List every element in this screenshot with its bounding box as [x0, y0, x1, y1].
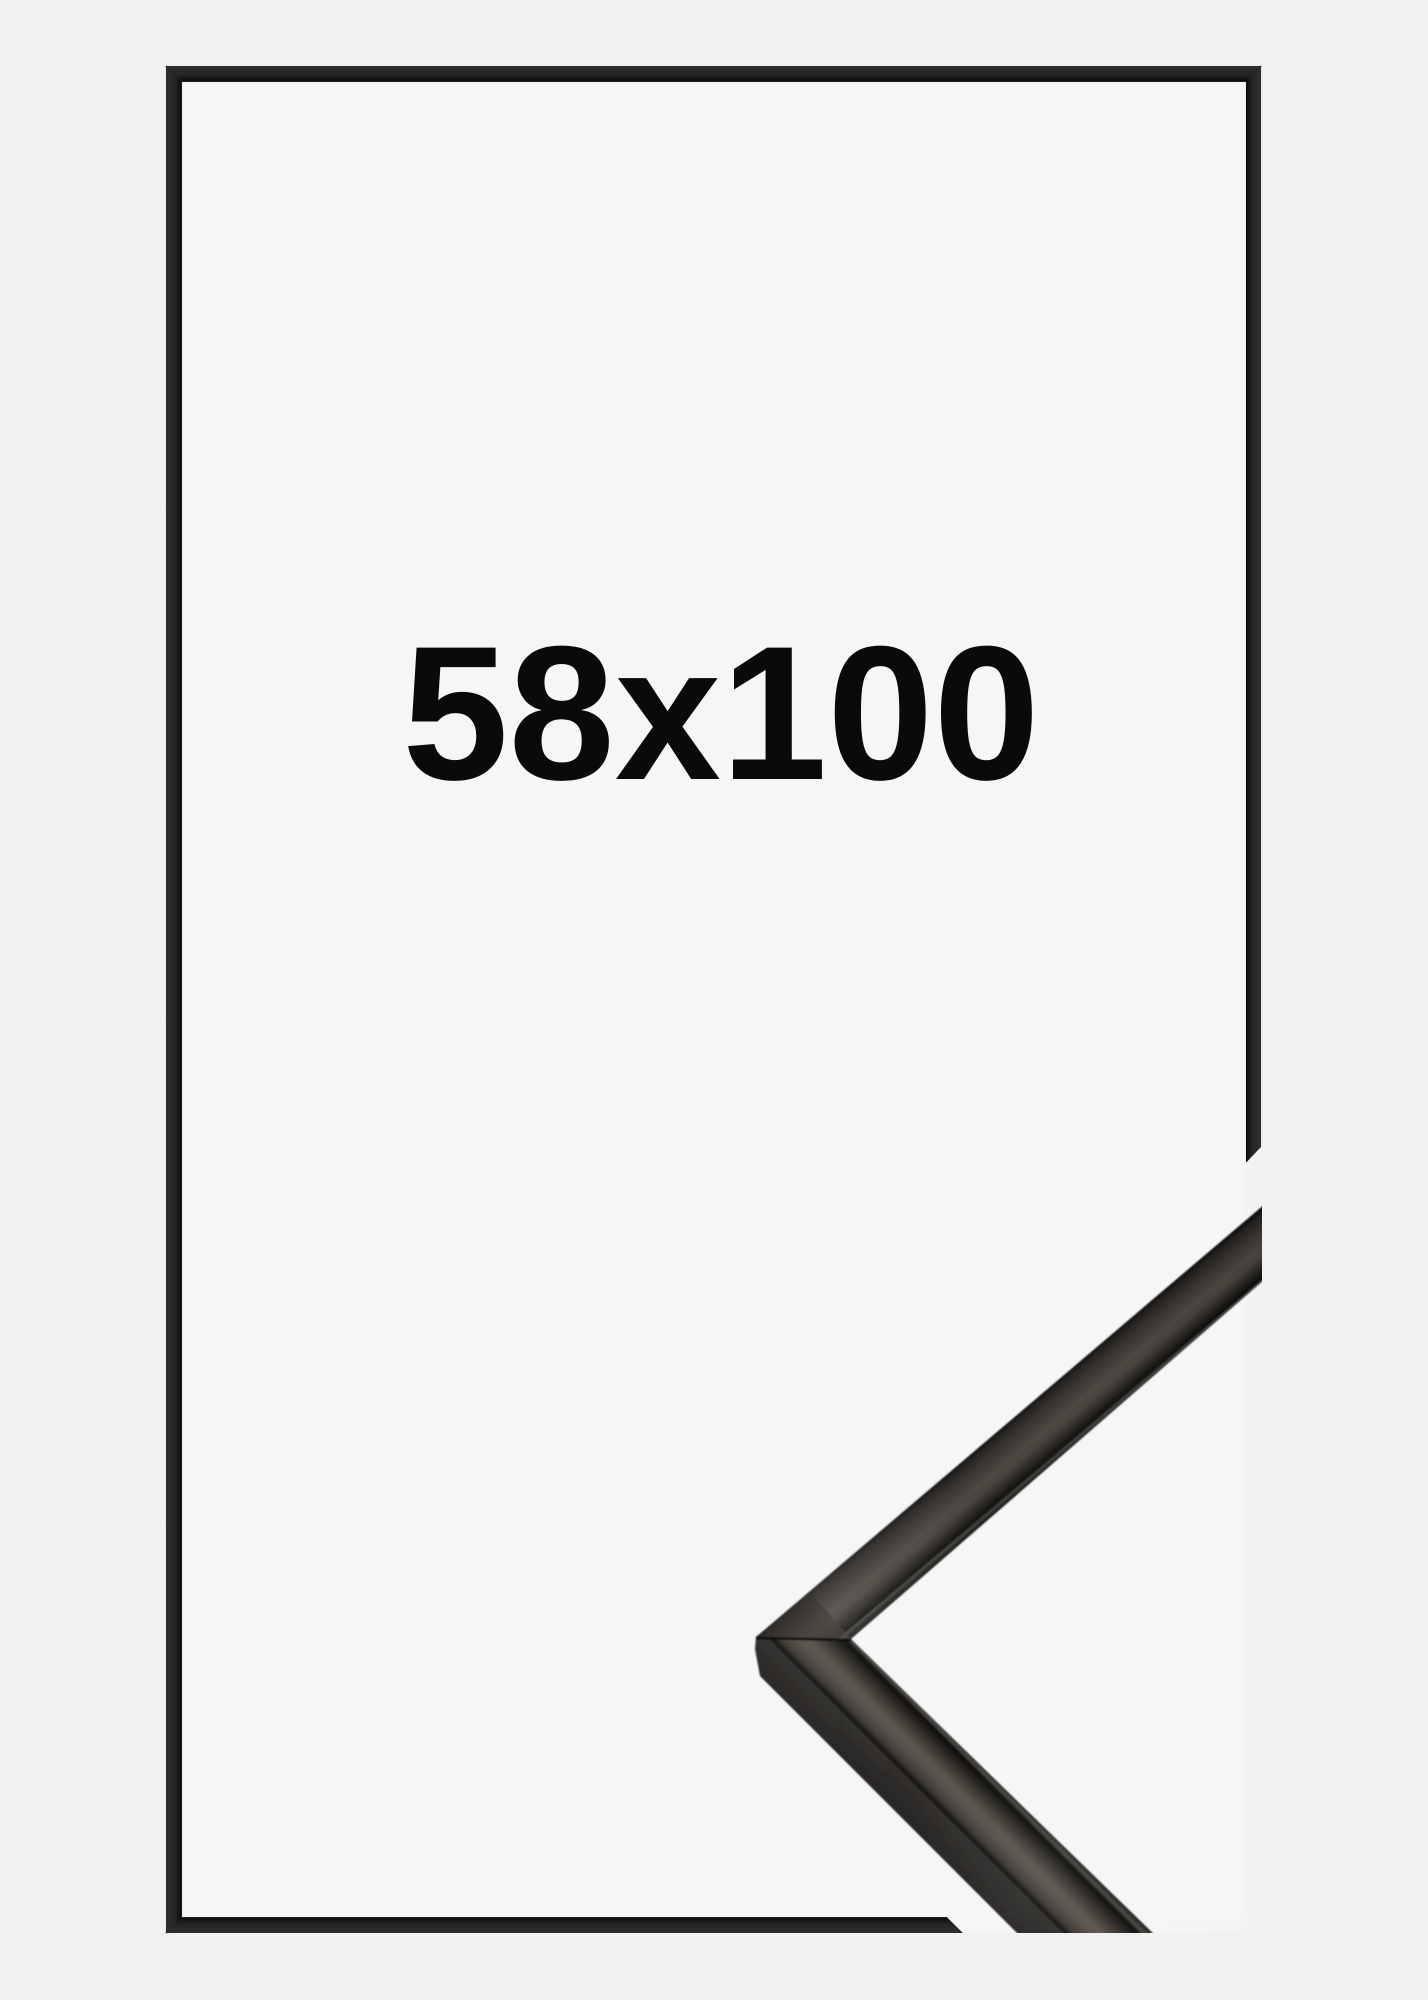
svg-text:58x100: 58x100	[402, 607, 1039, 820]
